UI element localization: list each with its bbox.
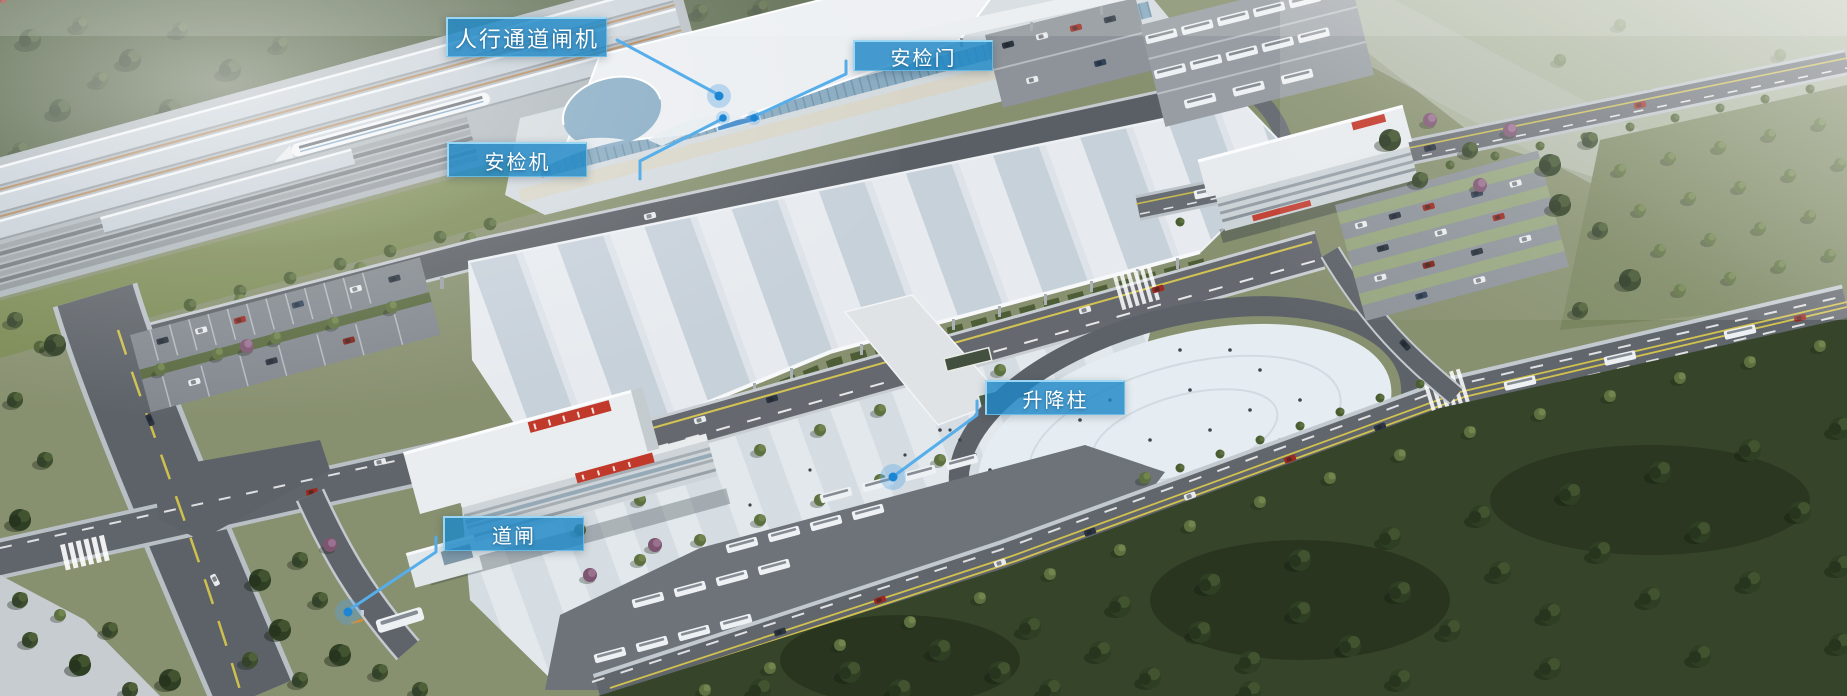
callout-rising-bollard: 升降柱 [985, 380, 1125, 415]
callout-security-scanner-label: 安检机 [485, 146, 551, 175]
callout-security-door-label: 安检门 [891, 42, 957, 71]
fog-overlay-top [0, 0, 1847, 36]
callout-security-scanner: 安检机 [447, 142, 587, 177]
callout-rising-bollard-label: 升降柱 [1023, 384, 1089, 413]
callout-pedestrian-lane-gate-label: 人行通道闸机 [455, 22, 599, 54]
callout-pedestrian-lane-gate: 人行通道闸机 [446, 17, 607, 57]
fog-overlay-left [0, 0, 900, 420]
callout-barrier-gate-label: 道闸 [492, 520, 536, 549]
scene-rendering [0, 0, 1847, 696]
callout-barrier-gate: 道闸 [443, 516, 584, 551]
callout-security-door: 安检门 [853, 40, 993, 71]
fog-overlay-right [1280, 0, 1847, 320]
hero-aerial-rendering: 人行通道闸机 安检门 安检机 升降柱 道闸 [0, 0, 1847, 696]
